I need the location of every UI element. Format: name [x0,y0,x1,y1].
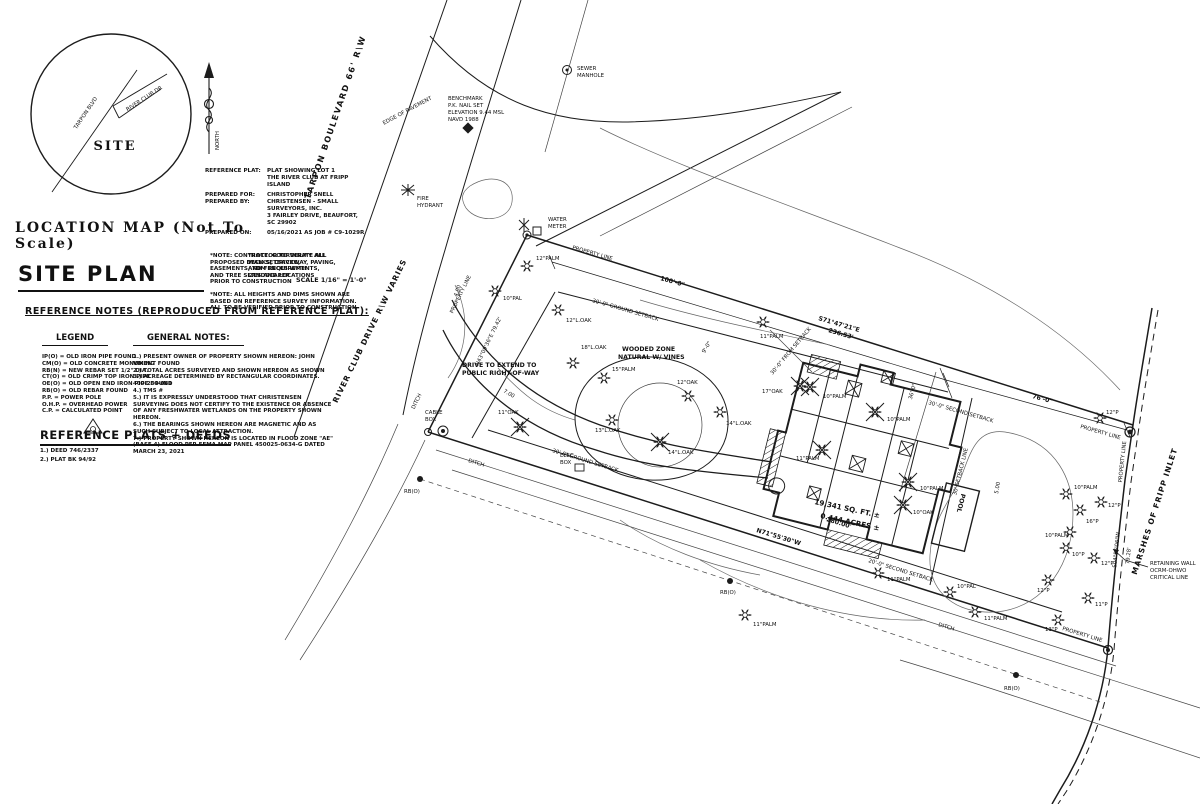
tree-glyph [682,391,694,401]
elec-box-symbol [575,464,584,471]
tree-glyph-removed [651,433,669,451]
reference-notes-heading: REFERENCE NOTES (REPRODUCED FROM REFEREN… [25,306,369,317]
sewer-manhole-label: SEWER [577,66,597,72]
tree-glyph [739,610,751,620]
entry-steps-hatch [757,429,786,487]
sheet-title: SITE PLAN [18,262,204,292]
map-road-river-club-label: RIVER CLUB DR [125,85,163,113]
retaining-wall-label: CRITICAL LINE [1150,575,1189,581]
fire-hydrant-symbol [401,184,415,196]
tree-glyph [521,261,533,271]
property-line-label: PROPERTY LINE [1118,440,1128,483]
title-block-label [205,213,267,227]
plats-deeds-heading: REFERENCE PLATS + DEEDS [40,428,231,446]
tree-glyph [1088,553,1100,563]
tree-glyph [969,607,981,617]
tree-label: 11"P [1095,602,1108,608]
plats-deeds-item: 1.) DEED 746/2337 [40,448,231,455]
benchmark-label: ELEVATION 9.44 MSL [448,110,504,116]
tree-label: 18"L.OAK [581,345,607,351]
retaining-wall-label: OCRM-OHWO [1150,568,1186,574]
property-line-label: PROPERTY LINE [571,245,613,262]
north-arrow-icon: NORTH [192,58,226,158]
reference-plat-block: REFERENCE PLAT: PLAT SHOWING LOT 1 THE R… [205,168,365,237]
plats-deeds-list: 1.) DEED 746/2337 2.) PLAT BK 94/92 [40,448,231,464]
fire-hydrant-label: FIRE [417,196,429,202]
contour-label: 7.00 [502,389,516,400]
fire-hydrant-label: HYDRANT [417,203,444,209]
tree-glyph [714,407,726,417]
title-block-value: CHRISTENSEN - SMALL SURVEYORS, INC. [267,199,365,213]
drive-note: DRIVE TO EXTEND TO [462,362,536,369]
location-map-drawing: TARPON BLVD RIVER CLUB DR SITE [15,14,215,214]
title-block-label [205,175,267,189]
map-road-tarpon-label: TARPON BLVD [73,96,100,131]
general-note: 3.) ACREAGE DETERMINED BY RECTANGULAR CO… [133,374,333,388]
tree-label: 11"PALM [887,577,911,583]
plats-deeds-item: 2.) PLAT BK 94/92 [40,457,231,464]
tree-label: 11"PALM [760,334,784,340]
drive-note: PUBLIC RIGHT-OF-WAY [462,370,540,377]
ditch-label: DITCH [937,622,955,633]
tree-label: 13"L.OAK [595,428,621,434]
rebar-label: RB(O) [1004,686,1020,692]
title-block-label: PREPARED ON: [205,230,267,237]
title-block-value: 05/16/2021 AS JOB # C9-1029R [267,230,364,237]
dim-9: 9'-0" [701,340,713,354]
bearing-east: S04°56'06"W [1112,531,1122,568]
tree-glyph [1082,593,1094,603]
tree-glyph [1052,615,1064,625]
tree-glyph-removed [866,403,884,421]
reference-plats-deeds-section: REFERENCE PLATS + DEEDS 1.) DEED 746/233… [40,424,231,464]
tree-glyph-removed [801,378,819,396]
tree-glyph [567,358,579,368]
title-block-row: PREPARED FOR: CHRISTOPHER SNELL [205,192,365,199]
dim-100: 100'-0" [659,275,685,289]
tree-glyph [1042,575,1054,585]
ditch-lines [420,450,1200,758]
title-block-label: PREPARED BY: [205,199,267,213]
tree-label: 10"PALM [823,394,847,400]
tree-label: 15"PALM [612,367,636,373]
tree-label: 12"PALM [536,256,560,262]
marshes-label: MARSHES OF FRIPP INLET [1130,447,1180,576]
general-note: 4.) TMS # [133,388,333,395]
title-block-value: 3 FAIRLEY DRIVE, BEAUFORT, SC 29902 [267,213,365,227]
title-block-row: 3 FAIRLEY DRIVE, BEAUFORT, SC 29902 [205,213,365,227]
tree-label: 10"OAK [913,510,934,516]
tree-label: 13"P [1045,627,1058,633]
benchmark-label: P.K. NAIL SET [448,103,484,109]
title-block-value: THE RIVER CLUB AT FRIPP ISLAND [267,175,365,189]
tree-glyph [606,415,618,425]
contour-label: 5.00 [994,481,1002,494]
tree-label: 12"L.OAK [566,318,592,324]
tree-label: 17"OAK [762,389,783,395]
legend-heading: LEGEND [42,333,108,346]
map-site-label: SITE [93,139,136,154]
tree-glyph [1074,505,1086,515]
stair-hatch-top [807,354,840,379]
tree-glyph [944,587,956,597]
tree-label: 16"P [1086,519,1099,525]
tree-label: 12"P [1106,410,1119,416]
title-block-row: PREPARED BY: CHRISTENSEN - SMALL SURVEYO… [205,199,365,213]
tree-label: 10"PALM [1045,533,1069,539]
benchmark-label: BENCHMARK [448,96,483,102]
general-note: 2.) TOTAL ACRES SURVEYED AND SHOWN HEREO… [133,368,333,375]
stair-hatch-bottom [824,530,882,559]
sewer-manhole-label: MANHOLE [577,73,605,79]
tree-glyph [757,317,769,327]
title-block-value: PLAT SHOWING LOT 1 [267,168,335,175]
wooded-zone-label: NATURAL W/ VINES [618,354,685,361]
cable-box-label: BOX [425,417,437,423]
general-note: 1.) PRESENT OWNER OF PROPERTY SHOWN HERE… [133,354,333,368]
general-note: 5.) IT IS EXPRESSLY UNDERSTOOD THAT CHRI… [133,395,333,422]
tree-glyph [598,373,610,383]
tree-glyph-removed [511,418,529,436]
title-block-label: PREPARED FOR: [205,192,267,199]
contour-lines [448,128,1120,620]
tree-glyph-removed [899,473,917,491]
site-plan-sheet: POOL [0,0,1200,804]
elec-box-label: ELEC [560,453,574,459]
bearing-south: N71°55'30"W [755,526,802,547]
tree-glyph [489,286,501,296]
benchmark-symbol [462,122,473,133]
water-meter-label: METER [548,224,567,230]
rebar-label: RB(O) [720,590,736,596]
title-block-row: THE RIVER CLUB AT FRIPP ISLAND [205,175,365,189]
tree-label: 11"PALM [753,622,777,628]
retaining-wall-label: RETAINING WALL [1150,561,1196,567]
tree-label: 10"PAL [503,296,522,302]
general-notes-heading: GENERAL NOTES: [133,333,244,346]
tree-label: 10"PALM [887,417,911,423]
plan-labels: TARPON BOULEVARD 66' R\W EDGE OF PAVEMEN… [302,34,1195,692]
scale-label: SCALE 1/16" = 1'-0" [296,276,367,284]
elec-box-label: BOX [560,460,572,466]
cable-box-label: CABLE [425,410,443,416]
dim-76: 76'-0" [1031,393,1053,405]
tree-label: 11"PALM [984,616,1008,622]
tree-label: 12"P [1037,588,1050,594]
rebar-label: RB(O) [404,489,420,495]
column-boxes [807,360,930,520]
location-map-roads [52,70,167,192]
tree-label: 10"PALM [920,486,944,492]
tree-glyph [1060,543,1072,553]
tree-label: 14"L.OAK [668,450,694,456]
tree-label: 12"P [1108,503,1121,509]
tree-label: 11"PALM [796,456,820,462]
wooded-zone-label: WOODED ZONE [622,346,675,353]
tree-glyph [1095,497,1107,507]
north-arrow-label: NORTH [215,131,221,150]
location-map-circle [31,34,191,194]
tree-glyph [552,305,564,315]
tree-label: 11"OAK [498,410,519,416]
tree-label: 10"PAL [957,584,976,590]
ditch-label: DITCH [411,393,424,411]
tree-label: 10"PALM [1074,485,1098,491]
tree-label: 12"OAK [677,380,698,386]
title-block-label: REFERENCE PLAT: [205,168,267,175]
ditch-label: DITCH [467,458,485,469]
tree-label: 10"P [1072,552,1085,558]
north-arrow-head [204,62,214,78]
title-block-value: CHRISTOPHER SNELL [267,192,333,199]
edge-of-pavement-label: EDGE OF PAVEMENT [382,95,434,126]
ground-setback-label: 30'-0" GROUND SETBACK [591,298,659,323]
title-block-row: REFERENCE PLAT: PLAT SHOWING LOT 1 [205,168,365,175]
title-block-row: PREPARED ON: 05/16/2021 AS JOB # C9-1029… [205,230,365,237]
benchmark-label: NAVD 1988 [448,117,479,123]
water-meter-label: WATER [548,217,567,223]
tree-label: 14"L.OAK [726,421,752,427]
